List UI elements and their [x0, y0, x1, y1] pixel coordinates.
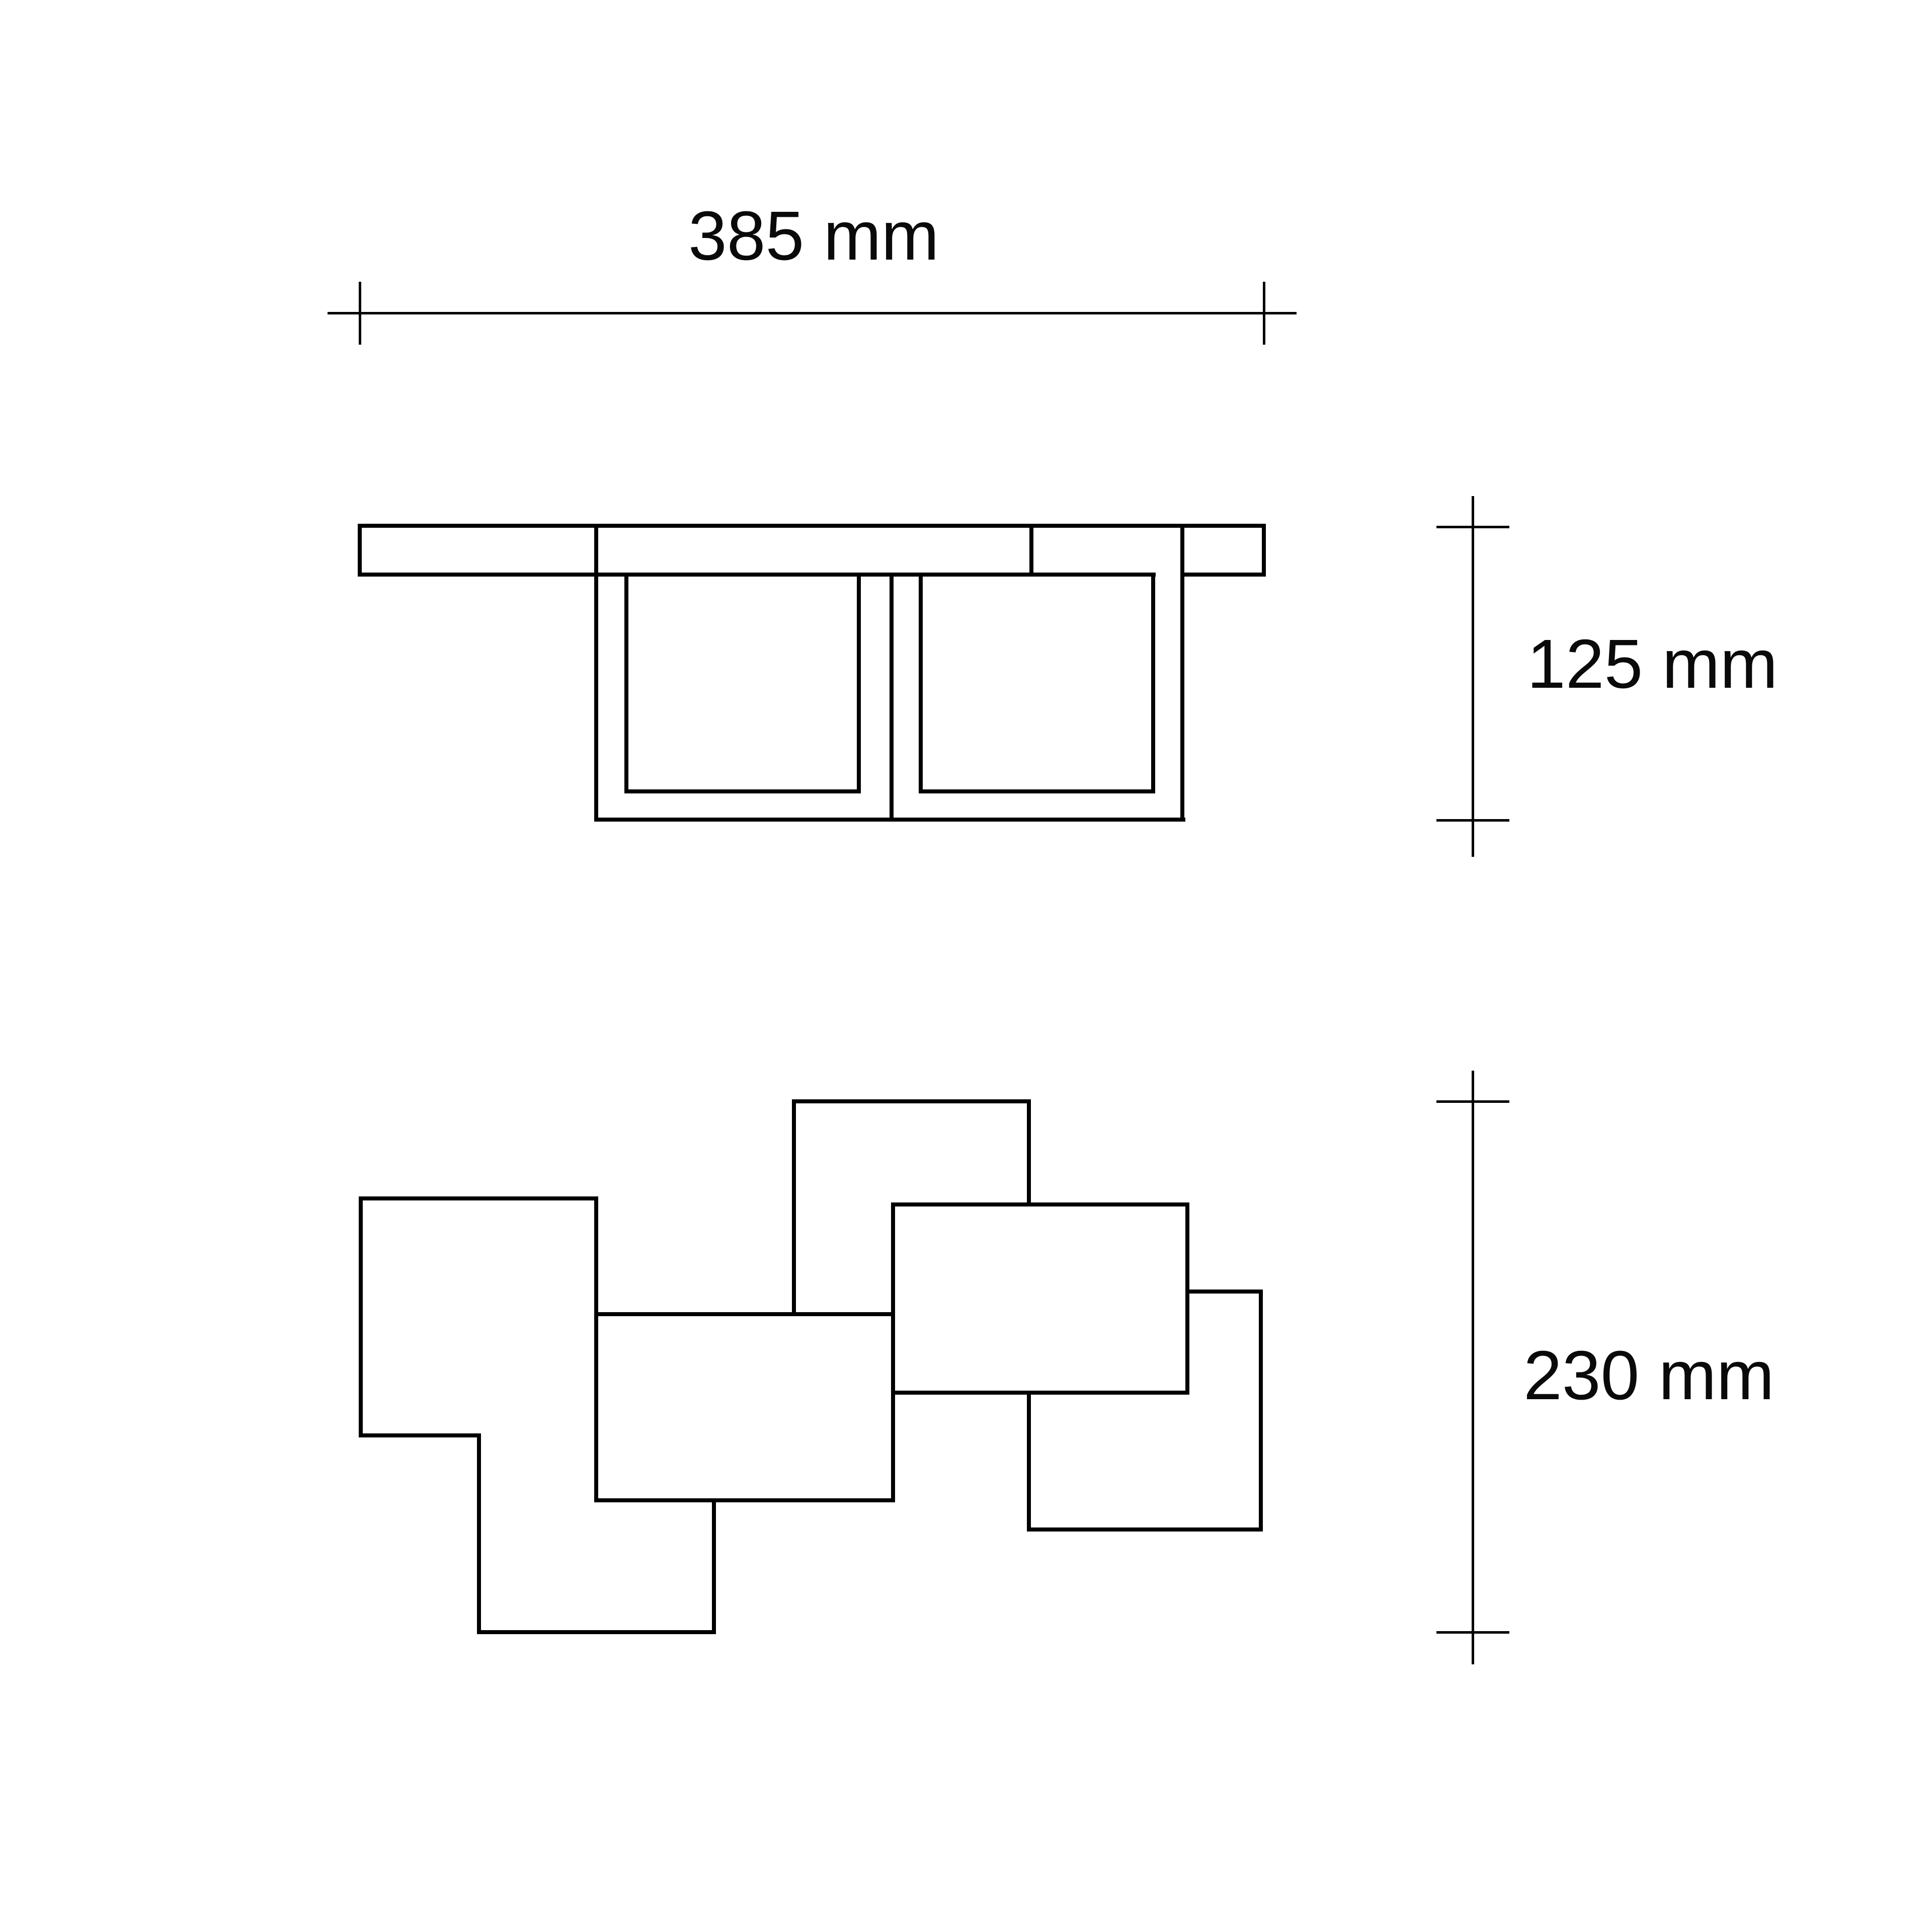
drawing-line [792, 1099, 796, 1316]
dimension-tick [1436, 526, 1509, 528]
drawing-line [1180, 524, 1184, 822]
drawing-line [624, 573, 628, 793]
drawing-line [359, 1433, 481, 1437]
drawing-line [477, 1630, 716, 1634]
drawing-line [792, 1099, 1031, 1103]
drawing-line [712, 1498, 716, 1634]
drawing-line [891, 1202, 1189, 1206]
drawing-line [359, 1196, 363, 1437]
drawing-line [594, 524, 598, 822]
drawing-line [1262, 524, 1266, 577]
drawing-line [358, 524, 1266, 528]
dimension-tick [1263, 282, 1265, 345]
drawing-canvas: 385 mm 125 mm 230 mm [0, 0, 1932, 1932]
front-height-dimension-label: 125 mm [1527, 629, 1778, 699]
dimension-tick [1436, 1100, 1509, 1103]
drawing-line [594, 1498, 895, 1502]
drawing-line [891, 1202, 895, 1502]
drawing-line [919, 789, 1155, 793]
drawing-line [594, 1312, 895, 1316]
drawing-line [891, 1391, 1189, 1395]
dimension-line [328, 312, 1297, 314]
drawing-line [1185, 1290, 1263, 1294]
drawing-line [1029, 524, 1033, 577]
drawing-line [1180, 573, 1266, 577]
dimension-tick [1436, 819, 1509, 822]
drawing-line [624, 789, 861, 793]
dimension-line [1472, 1071, 1474, 1664]
drawing-line [358, 524, 362, 577]
drawing-line [594, 1196, 598, 1502]
drawing-line [359, 1196, 598, 1200]
drawing-line [1185, 1202, 1189, 1395]
drawing-line [857, 573, 861, 793]
drawing-line [890, 573, 894, 822]
drawing-line [477, 1433, 481, 1634]
drawing-line [1027, 1391, 1031, 1532]
plan-depth-dimension-label: 230 mm [1523, 1341, 1775, 1410]
dimension-line [1472, 496, 1474, 857]
dimension-tick [1436, 1631, 1509, 1634]
drawing-line [1259, 1290, 1263, 1532]
width-dimension-label: 385 mm [688, 201, 939, 271]
drawing-line [919, 573, 923, 793]
drawing-line [1027, 1527, 1263, 1532]
drawing-line [1027, 1099, 1031, 1206]
drawing-line [358, 573, 1156, 577]
drawing-line [1151, 573, 1155, 793]
dimension-tick [359, 282, 361, 345]
